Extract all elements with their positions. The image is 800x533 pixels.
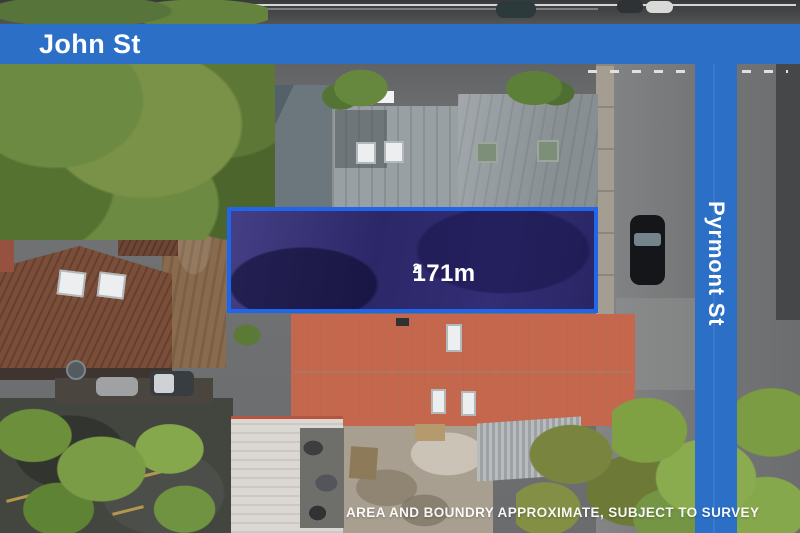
street-banner-pyrmont-st: Pyrmont St bbox=[695, 64, 737, 533]
parked-car bbox=[617, 0, 643, 13]
warehouse-skylight bbox=[461, 391, 476, 416]
courtyard-table bbox=[349, 446, 378, 480]
road-lane-line-secondary bbox=[238, 8, 598, 10]
house-skylight bbox=[57, 269, 87, 297]
lot-area-value: 171m bbox=[413, 260, 476, 288]
parked-car-white bbox=[646, 1, 673, 13]
garden-bush bbox=[226, 318, 268, 352]
roof-skylight bbox=[356, 142, 376, 164]
courtyard-bench bbox=[415, 424, 445, 441]
street-banner-john-st: John St bbox=[0, 24, 800, 64]
parked-car-black bbox=[630, 215, 665, 285]
roof-skylight-green bbox=[476, 142, 498, 163]
roof-skylight bbox=[384, 141, 404, 163]
lot-area-superscript: 2 bbox=[413, 260, 421, 276]
overgrown-bushes bbox=[0, 402, 240, 533]
car-windshield bbox=[634, 233, 661, 246]
warehouse-skylight bbox=[431, 389, 446, 414]
roof-skylight-green bbox=[537, 140, 559, 162]
driveway-car bbox=[96, 377, 138, 396]
street-name-label: John St bbox=[39, 29, 141, 60]
parked-car bbox=[496, 1, 536, 18]
driveway-van-roof bbox=[154, 374, 174, 393]
roof-vent bbox=[396, 318, 409, 326]
street-tree bbox=[490, 62, 578, 114]
pyrmont-st-sidewalk bbox=[776, 64, 800, 320]
disclaimer-text: AREA AND BOUNDRY APPROXIMATE, SUBJECT TO… bbox=[346, 505, 759, 520]
warehouse-skylight bbox=[446, 324, 462, 352]
road-dashed-marking bbox=[588, 70, 788, 73]
satellite-dish bbox=[66, 360, 86, 380]
brick-house-tiled-roof bbox=[0, 246, 172, 374]
house-skylight bbox=[97, 271, 127, 299]
street-tree bbox=[320, 60, 402, 116]
aerial-photo: 171m2 John St Pyrmont St AREA AND BOUNDR… bbox=[0, 0, 800, 533]
backyard-clutter bbox=[300, 428, 344, 528]
lot-boundary-overlay: 171m2 bbox=[227, 207, 598, 313]
street-name-label: Pyrmont St bbox=[703, 201, 729, 326]
